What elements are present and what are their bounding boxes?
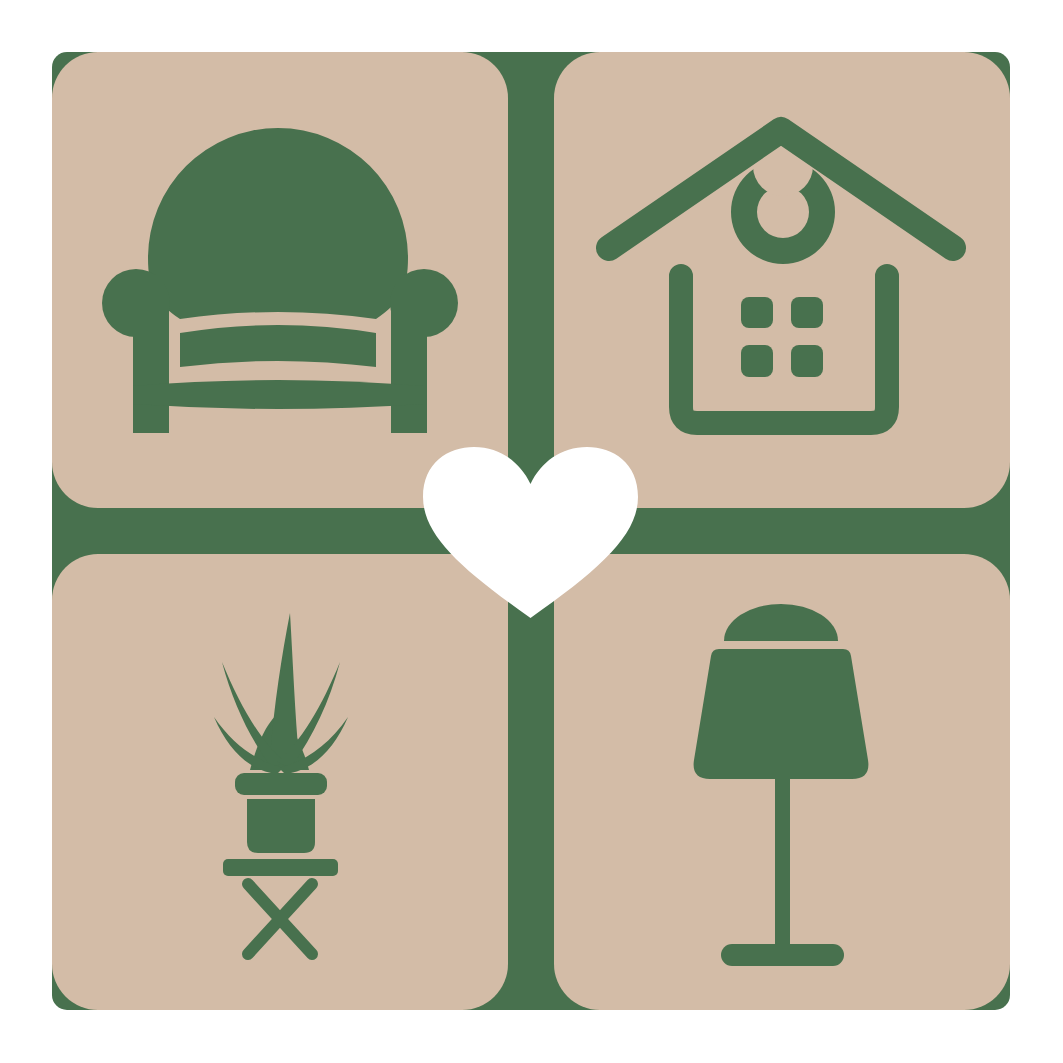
tile-top-left [52,52,508,508]
logo-canvas [0,0,1063,1063]
house-icon [554,52,1010,508]
heart-icon [423,447,638,623]
tile-top-right [554,52,1010,508]
armchair-icon [52,52,508,508]
furniture-home-logo [52,52,1010,1010]
